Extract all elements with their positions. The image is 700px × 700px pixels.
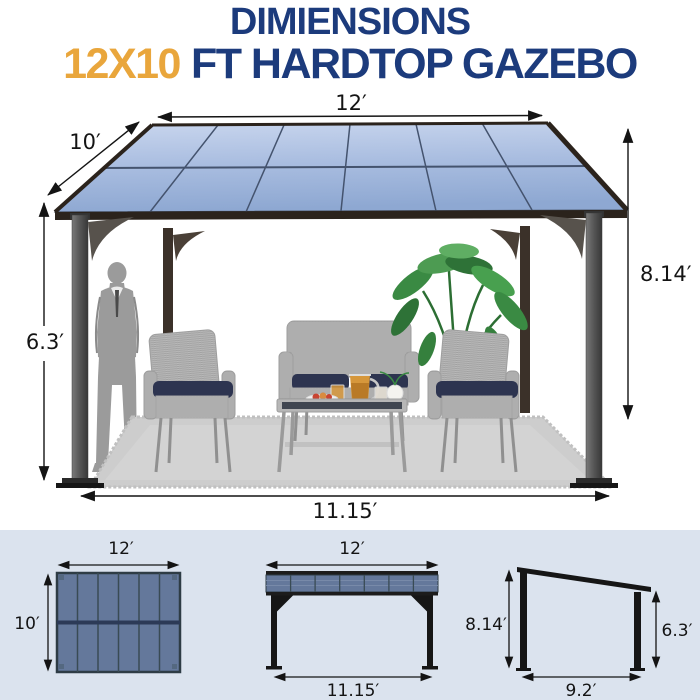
title-block: DIMIENSIONS 12X10FT HARDTOP GAZEBO <box>0 0 700 86</box>
front-view-diagram: 12′ 11.15′ <box>266 539 438 700</box>
top-view-diagram: 12′ 10′ <box>14 539 180 672</box>
title-line2-rest: FT HARDTOP GAZEBO <box>191 40 637 88</box>
title-line1: DIMIENSIONS <box>0 3 700 41</box>
gazebo-main-illustration: 12′ 10′ 8.14′ 6.3′ 11.15′ <box>0 85 700 530</box>
base-width-label: 11.15′ <box>313 499 378 523</box>
height-low-label: 6.3′ <box>26 330 64 354</box>
front-view-roof-width-label: 12′ <box>339 539 365 559</box>
height-high-label: 8.14′ <box>640 262 692 286</box>
side-view-diagram: 8.14′ 6.3′ 9.2′ <box>465 567 692 700</box>
roof-depth-label: 10′ <box>69 130 101 154</box>
top-view-depth-label: 10′ <box>14 614 40 634</box>
side-view-height-high-label: 8.14′ <box>465 615 507 635</box>
blueprint-section: 12′ 10′ <box>0 530 700 700</box>
side-view-base-depth-label: 9.2′ <box>566 681 597 700</box>
gazebo-roof <box>55 123 627 220</box>
front-view-base-width-label: 11.15′ <box>327 681 380 700</box>
title-size-highlight: 12X10 <box>63 40 180 88</box>
product-dimension-infographic: DIMIENSIONS 12X10FT HARDTOP GAZEBO <box>0 0 700 700</box>
top-view-width-label: 12′ <box>108 539 134 559</box>
blueprint-diagrams: 12′ 10′ <box>0 530 700 700</box>
roof-width-label: 12′ <box>335 91 367 115</box>
title-line2: 12X10FT HARDTOP GAZEBO <box>0 43 700 86</box>
side-view-height-low-label: 6.3′ <box>662 621 693 641</box>
roof-width-arrow <box>158 116 542 118</box>
